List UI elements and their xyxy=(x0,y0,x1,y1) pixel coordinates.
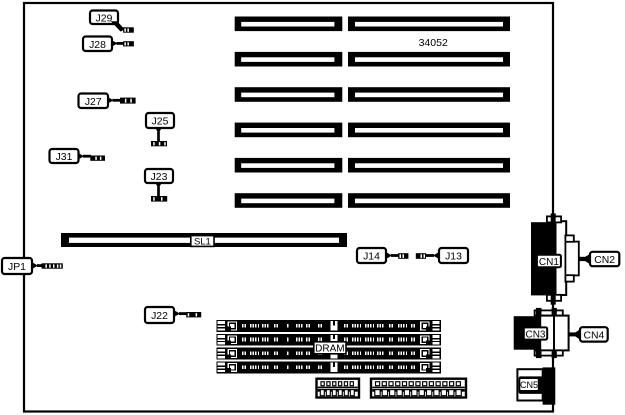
svg-text:J31: J31 xyxy=(56,152,73,163)
svg-text:DRAM: DRAM xyxy=(315,343,344,354)
svg-text:J22: J22 xyxy=(151,311,168,322)
svg-text:J14: J14 xyxy=(363,252,380,263)
svg-text:J27: J27 xyxy=(85,97,102,108)
svg-text:CN3: CN3 xyxy=(525,329,545,340)
svg-text:34052: 34052 xyxy=(419,37,448,49)
svg-text:J23: J23 xyxy=(151,172,168,183)
svg-text:CN5: CN5 xyxy=(520,380,538,390)
svg-text:J25: J25 xyxy=(152,117,169,128)
svg-text:CN1: CN1 xyxy=(539,257,559,268)
svg-text:CN2: CN2 xyxy=(594,255,615,266)
svg-text:JP1: JP1 xyxy=(8,262,26,273)
svg-text:CN4: CN4 xyxy=(583,330,604,341)
svg-text:J29: J29 xyxy=(96,13,113,24)
svg-text:J13: J13 xyxy=(445,252,462,263)
svg-text:SL1: SL1 xyxy=(194,237,211,248)
svg-text:J28: J28 xyxy=(89,40,106,51)
